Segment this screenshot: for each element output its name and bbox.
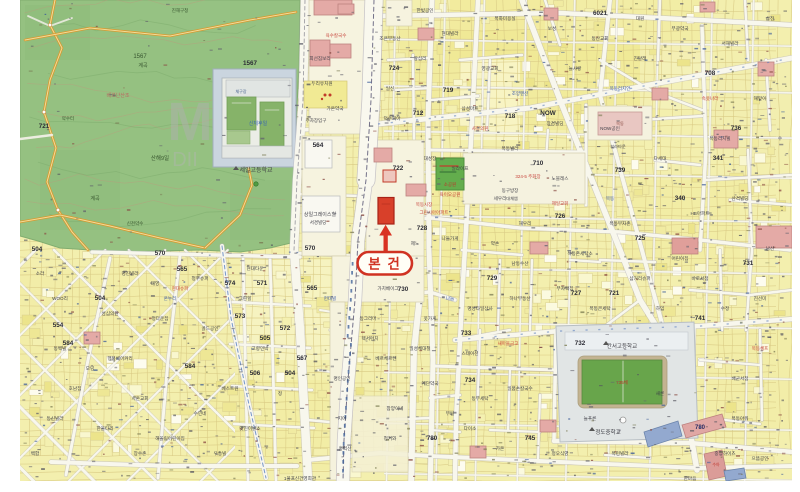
svg-text:본 건: 본 건 bbox=[368, 256, 401, 272]
